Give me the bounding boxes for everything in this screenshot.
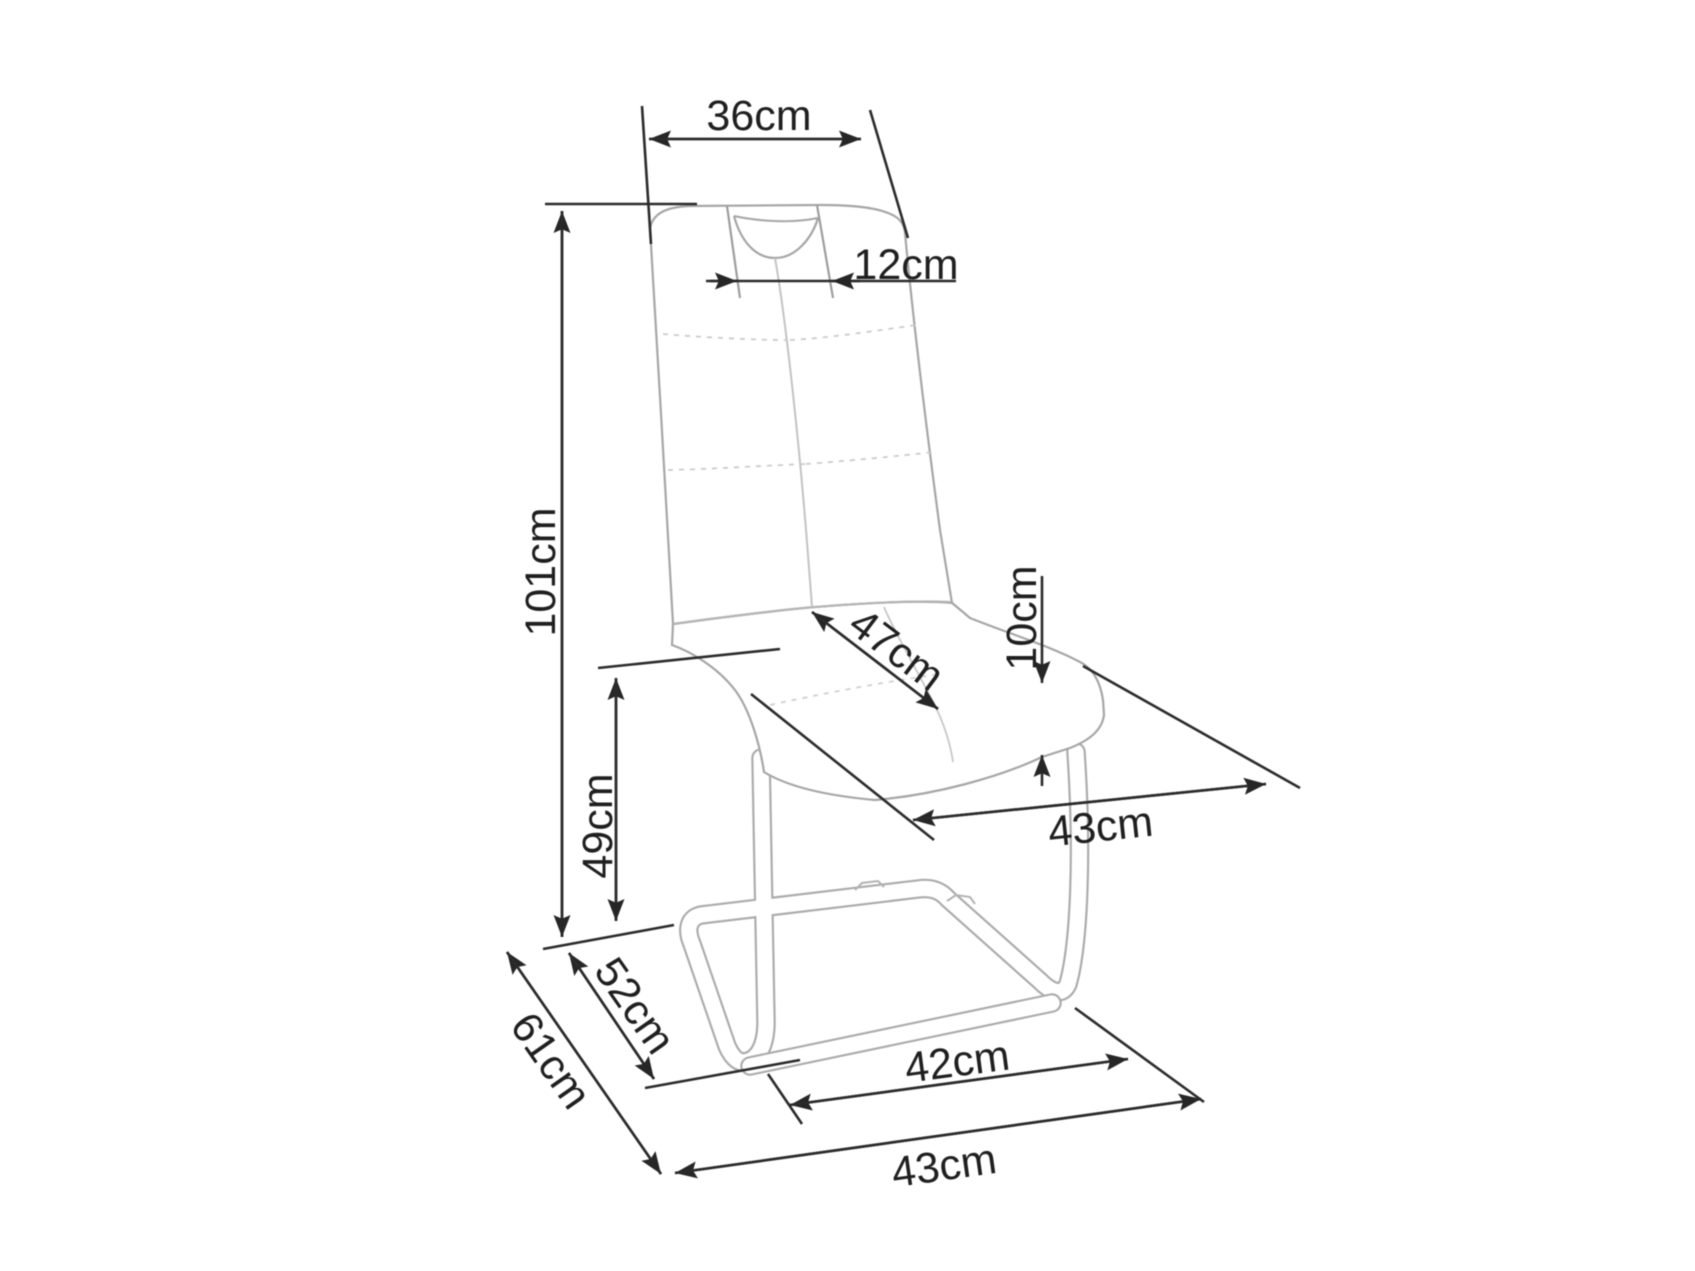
svg-text:101cm: 101cm bbox=[517, 507, 565, 636]
svg-text:49cm: 49cm bbox=[574, 773, 622, 878]
svg-text:12cm: 12cm bbox=[853, 241, 958, 289]
svg-text:10cm: 10cm bbox=[998, 565, 1046, 670]
svg-text:36cm: 36cm bbox=[706, 92, 811, 140]
